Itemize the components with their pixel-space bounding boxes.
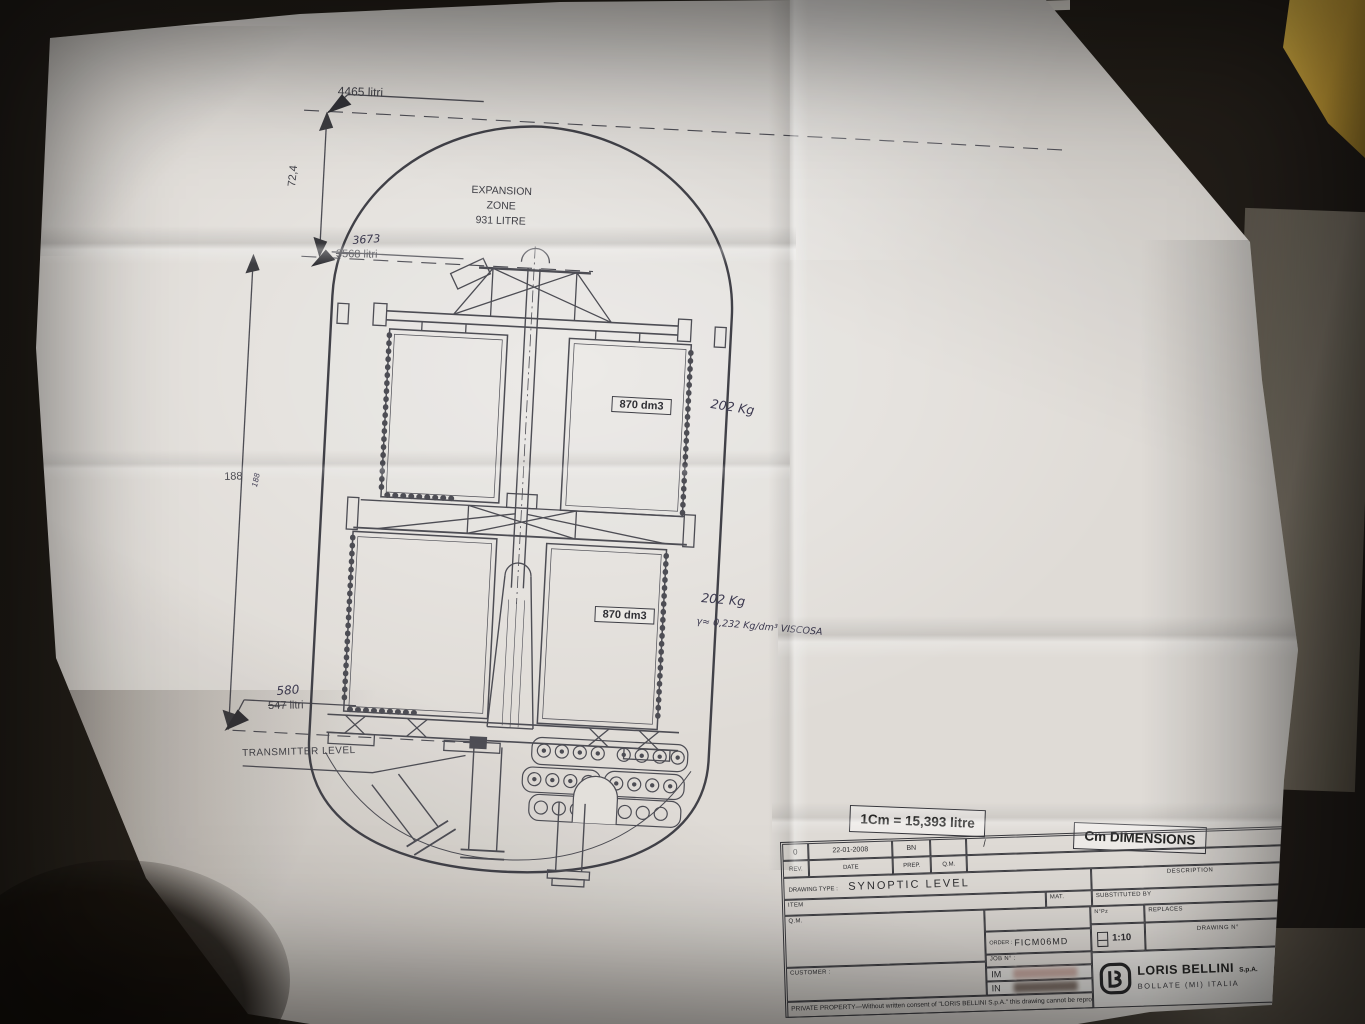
- dim-height-top: 72,4: [286, 165, 300, 188]
- order-label: ORDER :: [989, 940, 1012, 947]
- yellow-object: [1283, 0, 1365, 158]
- scale-value: 1:10: [1112, 932, 1131, 944]
- lower-chambers: [344, 531, 667, 729]
- level-lines: [232, 108, 1066, 777]
- projection-symbol-icon: [1097, 932, 1108, 947]
- loris-bellini-logo: [1099, 962, 1134, 995]
- im-redacted-value: [1013, 967, 1077, 979]
- dim-side: 188: [224, 470, 243, 483]
- mat-cell: MAT.: [1046, 890, 1092, 907]
- npz-cell: N°Pz: [1090, 905, 1145, 925]
- qm-label-cell: Q.M.: [931, 855, 968, 873]
- title-block: 0 22-01-2008 BN / REV. DATE PREP. Q.M. D…: [780, 826, 1297, 1018]
- substituted-by-label: SUBSTITUTED BY: [1096, 891, 1152, 899]
- company-suffix: S.p.A.: [1239, 966, 1258, 974]
- expansion-zone-label: EXPANSION ZONE 931 LITRE: [444, 182, 558, 232]
- replaces-label: REPLACES: [1148, 906, 1183, 913]
- item-label: ITEM: [788, 902, 804, 908]
- company-logo-cell: LORIS BELLINI S.p.A. BOLLATE (MI) ITALIA: [1092, 946, 1294, 1008]
- scale-cell: 1:10: [1091, 923, 1146, 953]
- dim-mid-number: 3568: [336, 248, 361, 260]
- npz-label: N°Pz: [1094, 909, 1108, 915]
- order-cell: ORDER : FICM06MD: [985, 928, 1092, 954]
- company-name: LORIS BELLINI: [1137, 961, 1234, 978]
- drawing-type-value: SYNOPTIC LEVEL: [848, 877, 970, 893]
- prep-label-cell: PREP.: [893, 856, 932, 874]
- rev-label-cell: REV.: [783, 860, 810, 878]
- dim-bottom-unit: litri: [289, 699, 303, 711]
- dim-mid-unit: litri: [363, 248, 377, 260]
- volume-lower-box: 870 dm3: [594, 606, 655, 625]
- dim-bottom-number: 547: [268, 700, 287, 712]
- order-value: FICM06MD: [1014, 936, 1068, 948]
- company-city: BOLLATE (MI) ITALIA: [1138, 979, 1240, 991]
- dim-bottom-handwritten: 580: [276, 682, 300, 698]
- qm-section-cell: Q.M.: [784, 910, 986, 968]
- im-label: IM: [991, 969, 1001, 979]
- dim-bottom-liters: 547 litri: [268, 699, 304, 712]
- mat-label: MAT.: [1050, 894, 1065, 900]
- volume-upper-box: 870 dm3: [611, 396, 672, 415]
- rev-value-cell: 0: [782, 843, 809, 861]
- in-redacted-value: [1014, 981, 1078, 993]
- dim-mid-handwritten: 3673: [352, 232, 381, 247]
- job-n-label: JOB N° :: [990, 956, 1016, 963]
- in-label: IN: [992, 983, 1001, 993]
- drawing-type-label: DRAWING TYPE :: [788, 886, 838, 894]
- qm-value-cell: [930, 838, 967, 856]
- dim-mid-liters: 3568 litri: [336, 248, 378, 261]
- customer-label: CUSTOMER :: [790, 969, 831, 976]
- scale-conversion-box: 1Cm = 15,393 litre: [849, 805, 986, 837]
- prep-value-cell: BN: [892, 839, 931, 857]
- agitator-assembly: [434, 242, 616, 608]
- qm-section-label: Q.M.: [788, 918, 802, 924]
- photo-of-technical-drawing: 4465 litri 72,4 3673 3568 litri EXPANSIO…: [0, 0, 1365, 1024]
- paper-sheet: 4465 litri 72,4 3673 3568 litri EXPANSIO…: [0, 0, 1365, 1024]
- dim-top-liters: 4465 litri: [338, 84, 384, 100]
- center-spindle: [487, 562, 542, 729]
